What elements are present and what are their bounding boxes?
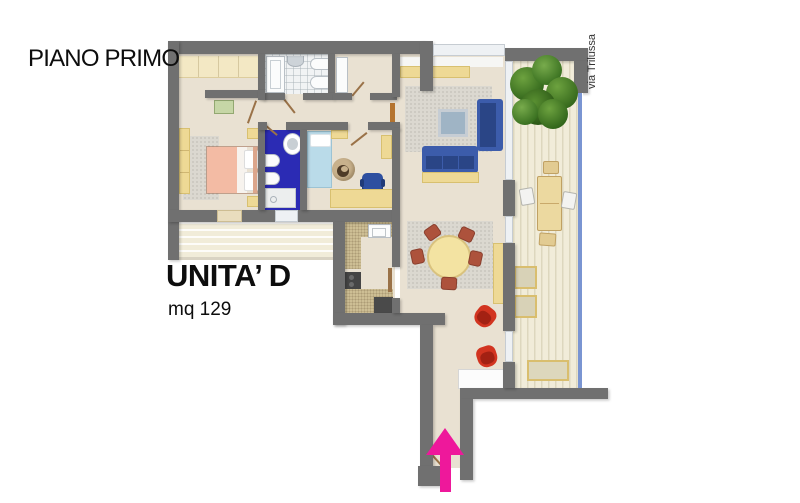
wall-south-terrace xyxy=(460,388,608,399)
wardrobe-master xyxy=(179,128,190,194)
kitchen-cooktop xyxy=(345,272,361,289)
cabinet-south xyxy=(458,369,505,389)
single-bed xyxy=(307,131,332,188)
pillow xyxy=(310,134,331,147)
round-armchair xyxy=(332,158,355,181)
wall-bath-south-a xyxy=(262,93,285,100)
street-name: via Trilussa xyxy=(586,33,598,89)
dining-chair xyxy=(410,248,426,265)
wall-bath-west xyxy=(258,54,265,90)
unit-name: UNITA’ D xyxy=(166,258,291,294)
unit-area: mq 129 xyxy=(168,299,231,321)
wardrobe-bedroom2 xyxy=(381,135,392,159)
balcony-door xyxy=(217,210,242,222)
wall-closet-room-south xyxy=(205,90,262,98)
terrace-lounge-chair xyxy=(514,295,537,318)
wall-master-east-b xyxy=(258,123,265,210)
toilet-blue-bath xyxy=(265,154,280,167)
double-bed-headboard xyxy=(253,147,257,193)
wall-pier-living xyxy=(420,41,433,91)
balcony-decking xyxy=(179,222,333,257)
wall-north xyxy=(168,41,425,54)
terrace-chair-wood xyxy=(539,232,557,246)
wall-corridor-south-b xyxy=(286,122,348,130)
terrace-lounge-chair xyxy=(514,266,537,289)
terrace-chair xyxy=(561,191,578,210)
kitchen-counter-left xyxy=(345,237,361,269)
wall-kitchen-south xyxy=(333,313,445,325)
wall-master-east-a xyxy=(258,90,265,100)
coffee-table xyxy=(438,109,468,137)
dining-chair xyxy=(441,277,458,291)
wardrobe-closet2 xyxy=(336,57,348,93)
terrace-tree xyxy=(510,55,580,137)
terrace-railing xyxy=(578,93,583,388)
entrance-arrow-head xyxy=(426,428,464,455)
wall-closet2-south-a xyxy=(333,93,352,100)
wall-bluebath-east xyxy=(300,130,307,210)
toilet-main-bath xyxy=(310,58,330,70)
wall-kitchen-west xyxy=(333,222,345,325)
floor-plan-page: PIANO PRIMO UNITA’ D mq 129 via Trilussa xyxy=(0,0,800,503)
wall-terrace-divider-c xyxy=(503,362,515,388)
bidet-blue-bath xyxy=(265,172,280,185)
shelf-bedroom2 xyxy=(331,130,348,139)
desk-bedroom2 xyxy=(330,189,393,208)
wall-living-west-b xyxy=(392,128,400,267)
kitchen-oven xyxy=(374,297,393,313)
wall-bath-south-b xyxy=(303,93,334,100)
entrance-arrow-shaft xyxy=(440,453,451,492)
kitchen-sink xyxy=(368,224,391,238)
window-terrace-mid xyxy=(505,216,513,243)
sink-main-bath xyxy=(287,56,304,67)
wall-living-west-c xyxy=(392,298,400,313)
wall-terrace-divider-a xyxy=(503,180,515,216)
sofa-vertical xyxy=(477,99,503,151)
bidet-main-bath xyxy=(310,76,330,89)
floor-title: PIANO PRIMO xyxy=(28,45,179,73)
wall-living-west-a xyxy=(392,54,400,97)
terrace-chair xyxy=(519,187,536,206)
kitchen-door-leaf xyxy=(388,268,392,292)
shower-main-bath xyxy=(266,56,285,93)
terrace-door xyxy=(505,331,513,362)
terrace-table xyxy=(537,176,562,231)
shower-blue-bath xyxy=(265,188,296,208)
wall-west xyxy=(168,41,179,260)
dining-table-round xyxy=(427,235,471,279)
green-bench xyxy=(214,100,234,114)
sofa-horizontal xyxy=(422,146,478,173)
terrace-chair-wood xyxy=(543,161,559,174)
wall-terrace-divider-b xyxy=(503,243,515,331)
double-bed-duvet xyxy=(207,147,237,193)
double-bed xyxy=(206,146,258,194)
wall-bath-east xyxy=(328,54,335,93)
wall-corridor-south-a xyxy=(258,122,267,130)
window-north-living xyxy=(433,44,505,56)
wardrobe-closet-room xyxy=(179,56,262,78)
sideboard-north xyxy=(400,66,470,78)
console-behind-sofa xyxy=(422,172,479,183)
terrace-bench xyxy=(527,360,569,381)
balcony-window xyxy=(275,210,298,222)
